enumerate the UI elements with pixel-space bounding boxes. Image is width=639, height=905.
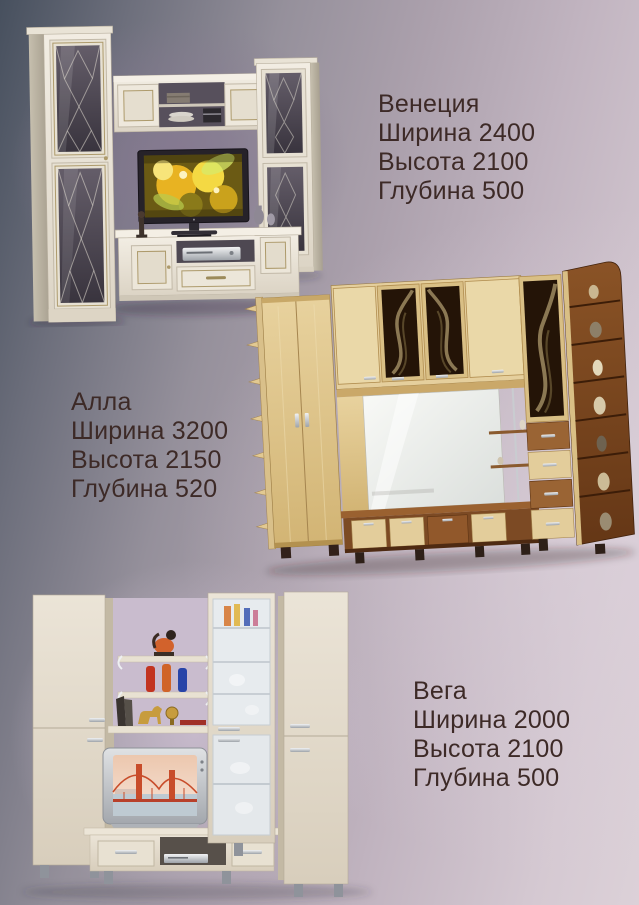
product-label-vega: Вега Ширина 2000 Высота 2100 Глубина 500 [413,677,570,793]
venecia-tv [138,149,250,238]
alla-upper-cabinets [331,276,526,390]
product-height: Высота 2100 [413,735,570,764]
vega-right-cabinet [278,592,348,897]
vega-shadow [22,884,372,900]
product-label-venecia: Венеция Ширина 2400 Высота 2100 Глубина … [378,90,535,206]
product-width: Ширина 2400 [378,119,535,148]
product-height: Высота 2100 [378,148,535,177]
catalog-page: Венеция Ширина 2400 Высота 2100 Глубина … [0,0,639,905]
alla-photo [240,246,639,586]
dvd-player [182,247,240,261]
venecia-wall-bridge [113,73,267,132]
alla-dark-glass-door-1 [377,284,424,382]
product-depth: Глубина 520 [71,475,228,504]
alla-mirror-niche [336,379,532,513]
product-name: Венеция [378,90,535,119]
alla-dark-glass-door-2 [421,282,468,380]
product-width: Ширина 3200 [71,417,228,446]
vega-tv [103,748,207,830]
product-height: Высота 2150 [71,446,228,475]
vega-photo [12,578,387,905]
vega-glass-cabinet [208,593,275,856]
product-label-alla: Алла Ширина 3200 Высота 2150 Глубина 520 [71,388,228,504]
alla-shadow [265,543,635,580]
venecia-left-display-cabinet [27,26,118,322]
product-name: Вега [413,677,570,706]
alla-illustration [240,246,639,586]
product-name: Алла [71,388,228,417]
vega-open-shelves [108,598,220,733]
alla-drawers [527,421,575,539]
product-depth: Глубина 500 [413,764,570,793]
product-depth: Глубина 500 [378,177,535,206]
alla-wardrobe [262,295,344,559]
vega-illustration [12,578,387,905]
product-width: Ширина 2000 [413,706,570,735]
